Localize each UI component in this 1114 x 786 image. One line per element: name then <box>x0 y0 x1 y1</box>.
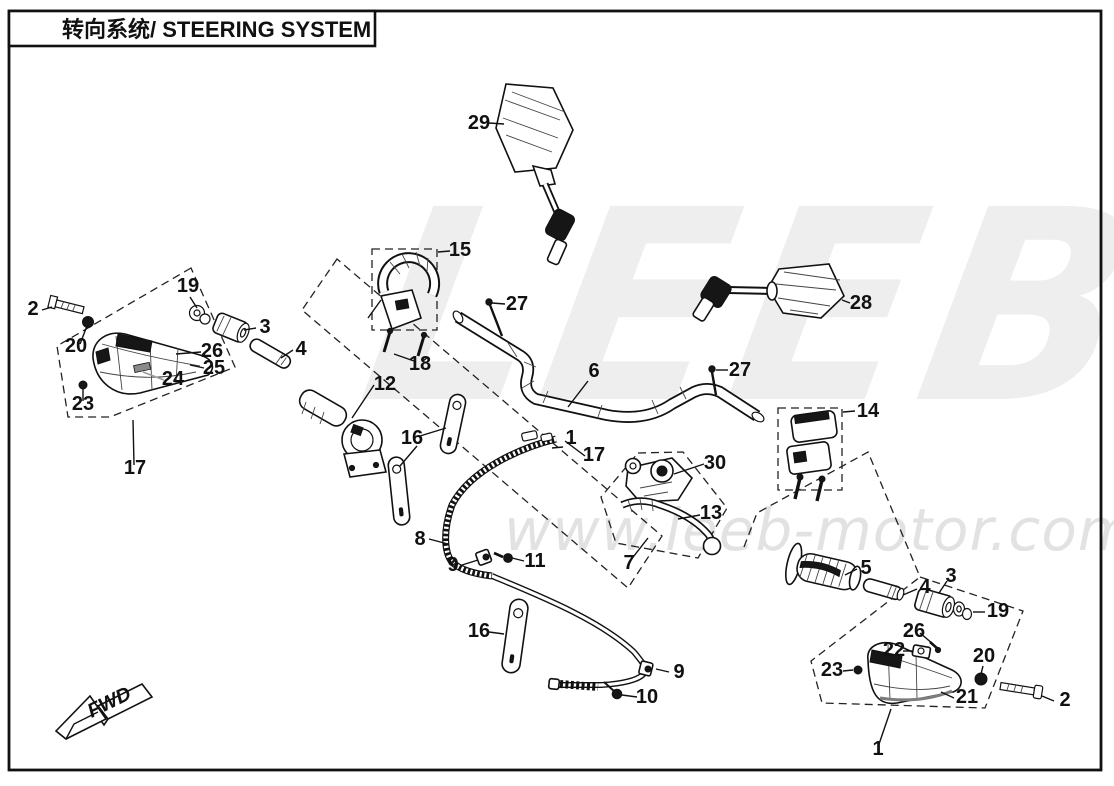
callout-3-right: 3 <box>945 565 956 587</box>
part-9-clamp-upper <box>475 549 492 566</box>
part-4-sleeve-left <box>248 337 293 370</box>
callout-27-right: 27 <box>729 359 751 381</box>
callout-4-left: 4 <box>295 338 307 360</box>
callout-19-left: 19 <box>177 275 199 297</box>
callout-23-right: 23 <box>821 659 843 681</box>
callout-16-b: 16 <box>468 620 490 642</box>
part-16-strap-b <box>387 456 410 525</box>
part-22-clamp-right <box>912 645 931 659</box>
part-10-bolt <box>612 689 622 699</box>
callout-26-right: 26 <box>903 620 925 642</box>
callout-1-mid: 1 <box>565 427 576 449</box>
part-14-switch-housing <box>786 410 837 501</box>
title-block: 转向系统/ STEERING SYSTEM <box>9 11 375 46</box>
part-29-mirror <box>496 84 576 265</box>
callout-13: 13 <box>700 502 722 524</box>
part-4-sleeve-right <box>862 577 905 601</box>
callout-10: 10 <box>636 686 658 708</box>
callout-29: 29 <box>468 112 490 134</box>
callout-17-left: 17 <box>124 457 146 479</box>
callout-20-right: 20 <box>973 645 995 667</box>
callout-23-left: 23 <box>72 393 94 415</box>
parts-diagram-page: LEEB www.leeb-motor.com <box>0 0 1114 786</box>
part-20-cap-left <box>83 317 94 328</box>
part-20-cap-right <box>975 673 987 685</box>
part-12-throttle-housing <box>296 387 386 477</box>
part-15-switch-housing <box>368 252 435 329</box>
callout-14: 14 <box>857 400 880 422</box>
callout-12: 12 <box>374 373 396 395</box>
part-23-screw-right <box>854 666 862 674</box>
part-11-bolt <box>494 553 512 562</box>
part-17-handguard-left <box>93 333 212 394</box>
callout-4-right: 4 <box>919 576 931 598</box>
callout-11: 11 <box>524 550 545 572</box>
callout-17-mid: 17 <box>583 444 605 466</box>
callout-1-bottom: 1 <box>872 738 883 760</box>
part-2-bolt-right <box>999 680 1043 699</box>
callout-21: 21 <box>956 686 978 708</box>
callout-30: 30 <box>704 452 726 474</box>
callout-5: 5 <box>860 557 871 579</box>
exploded-view-drawing: FWD 2 19 20 3 26 25 <box>0 0 1114 786</box>
fwd-direction-marker: FWD <box>56 683 152 739</box>
part-18-screws <box>384 328 427 356</box>
part-23-screw-left <box>79 381 87 389</box>
callout-7: 7 <box>623 552 634 574</box>
part-2-bolt-left <box>48 295 85 315</box>
callout-25: 25 <box>203 357 225 379</box>
callout-8: 8 <box>414 528 425 550</box>
page-title: 转向系统/ STEERING SYSTEM <box>62 17 371 42</box>
callout-27-left: 27 <box>506 293 528 315</box>
callout-19-right: 19 <box>987 600 1009 622</box>
part-19-washer-right <box>954 602 972 620</box>
part-9-clamp-lower <box>638 661 653 677</box>
callout-20-left: 20 <box>65 335 87 357</box>
callout-18: 18 <box>409 353 431 375</box>
callout-15: 15 <box>449 239 471 261</box>
callout-3-left: 3 <box>259 316 270 338</box>
callout-2-left: 2 <box>27 298 38 320</box>
part-16-strap-a <box>439 393 467 455</box>
part-28-mirror <box>692 264 844 322</box>
part-30-master-cylinder <box>626 458 693 502</box>
callout-24: 24 <box>162 368 185 390</box>
callout-28: 28 <box>850 292 872 314</box>
callout-6: 6 <box>588 360 599 382</box>
part-19-washer-left <box>190 306 211 325</box>
callout-9-lower: 9 <box>673 661 684 683</box>
callout-9-upper: 9 <box>447 554 458 576</box>
callout-16-a: 16 <box>401 427 423 449</box>
part-16-strap-c <box>501 598 529 674</box>
callout-2-right: 2 <box>1059 689 1070 711</box>
callout-22: 22 <box>883 639 905 661</box>
